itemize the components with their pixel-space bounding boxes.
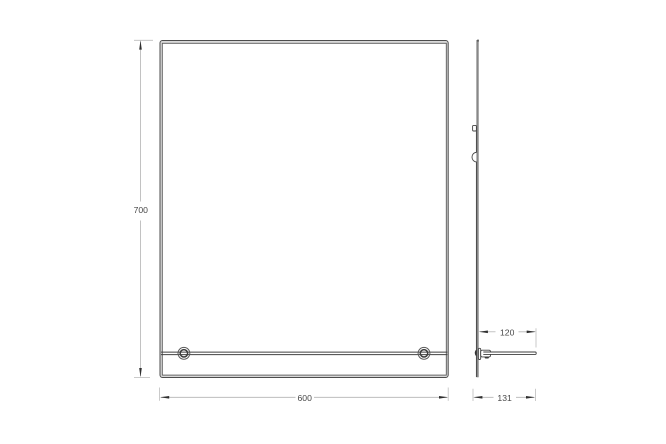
svg-text:600: 600: [298, 393, 313, 403]
svg-text:131: 131: [497, 393, 512, 403]
svg-text:120: 120: [500, 327, 515, 337]
svg-text:700: 700: [134, 205, 149, 215]
